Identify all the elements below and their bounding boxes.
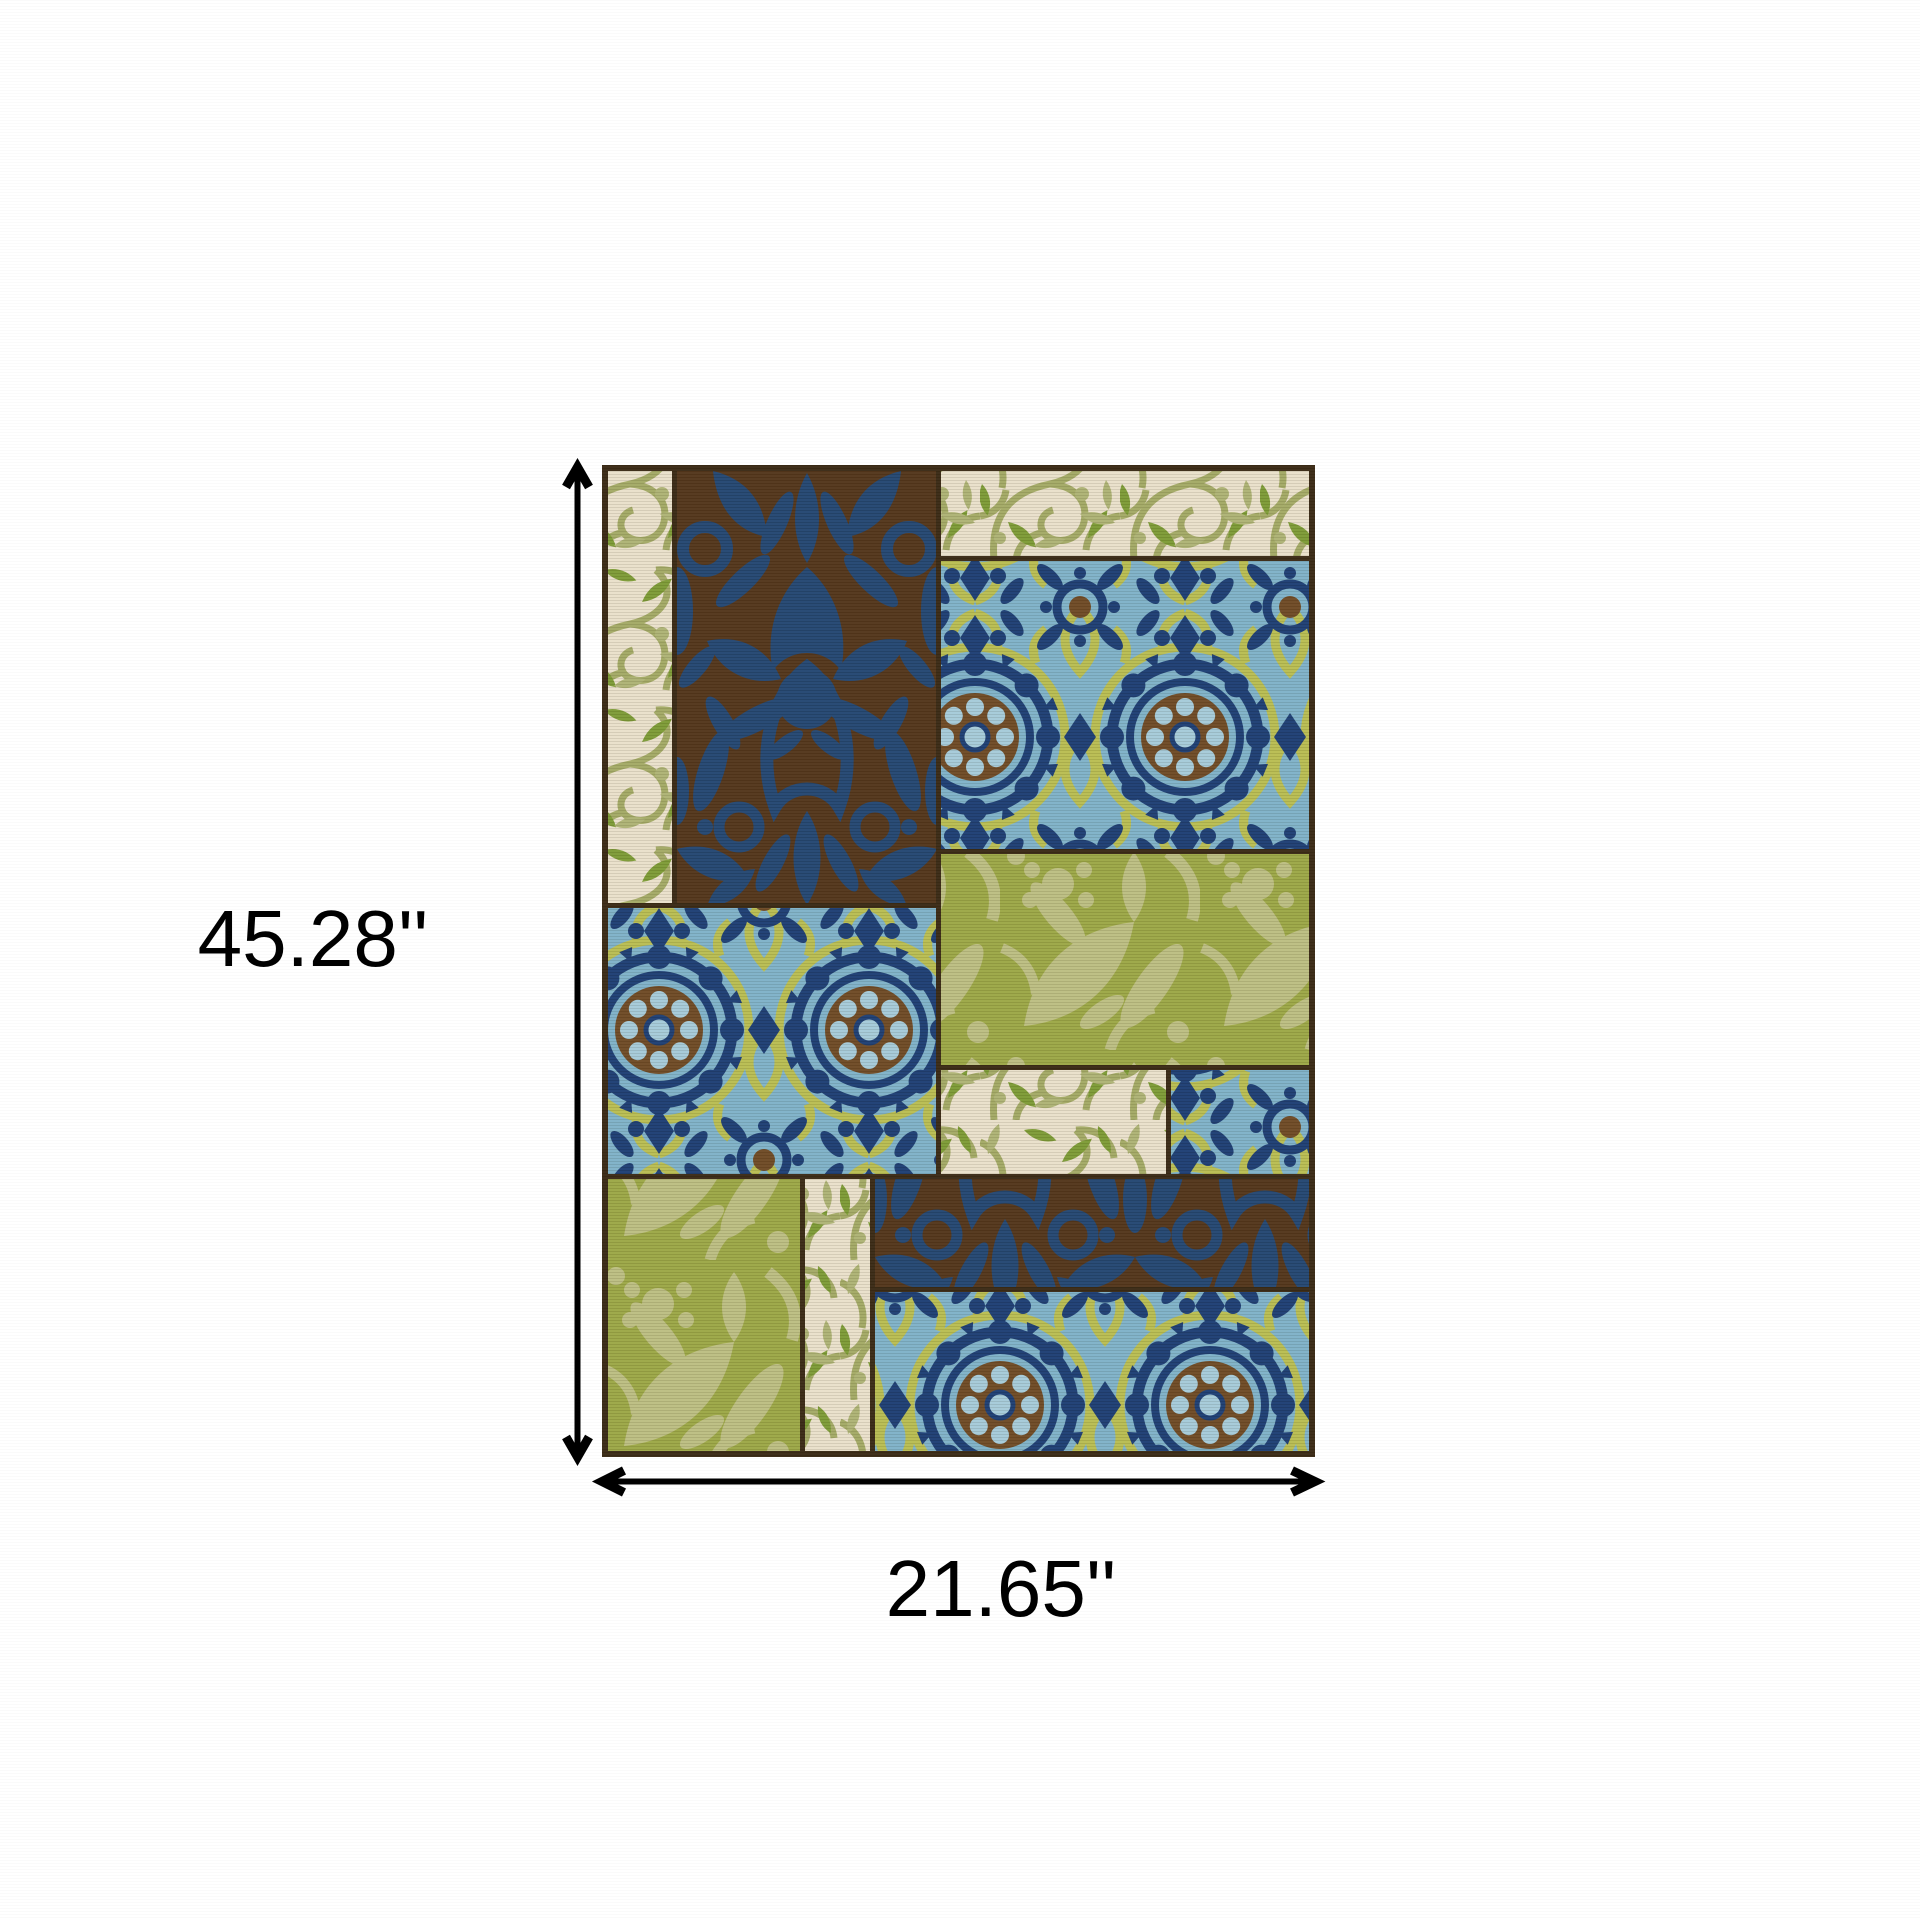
svg-text:21.65'': 21.65'' [886, 1544, 1117, 1633]
svg-text:45.28'': 45.28'' [198, 894, 429, 983]
